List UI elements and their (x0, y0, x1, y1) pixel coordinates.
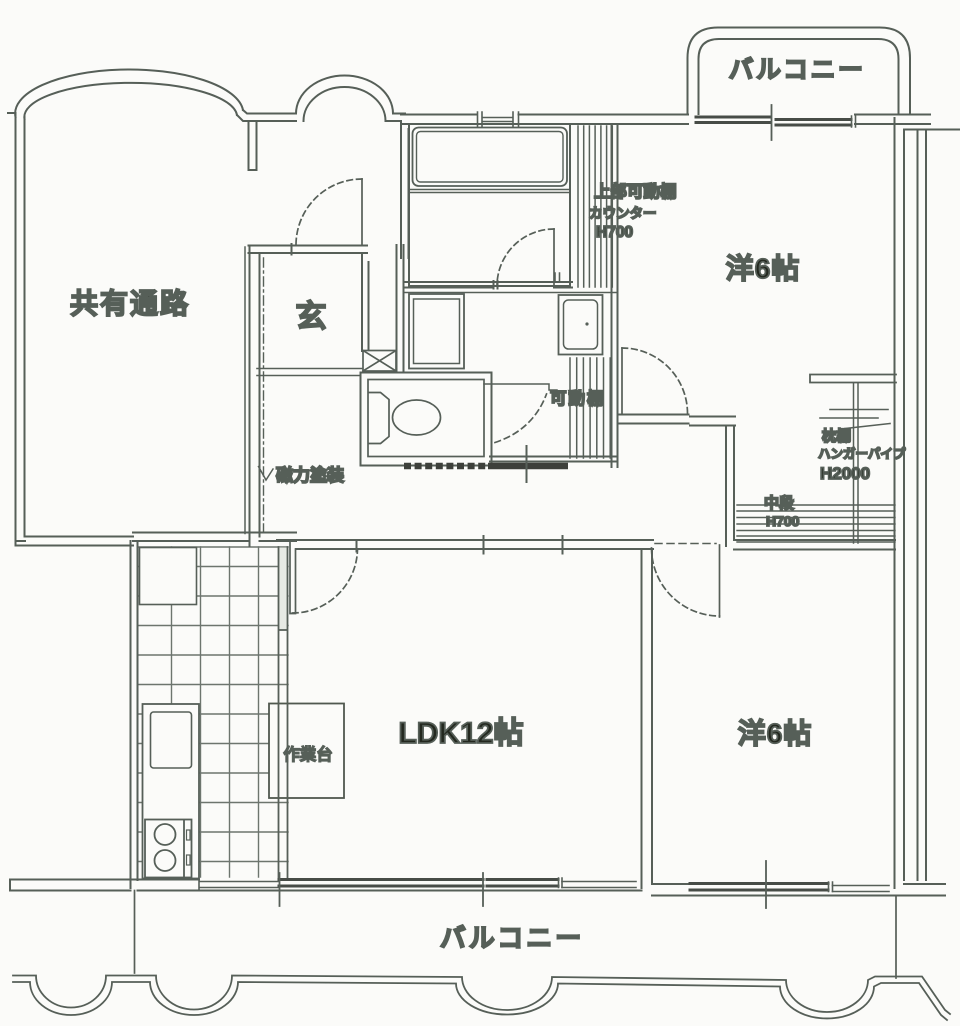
svg-text:作業台: 作業台 (283, 745, 333, 764)
svg-text:H700: H700 (596, 224, 633, 241)
svg-text:LDK12帖: LDK12帖 (398, 717, 523, 750)
svg-text:磁力塗装: 磁力塗装 (276, 465, 344, 485)
svg-text:共有通路: 共有通路 (70, 288, 190, 319)
svg-text:H2000: H2000 (820, 464, 870, 483)
svg-text:中段: 中段 (764, 494, 794, 512)
svg-text:玄: 玄 (296, 299, 327, 334)
svg-text:可動棚: 可動棚 (550, 388, 606, 408)
svg-text:バルコニー: バルコニー (728, 56, 865, 84)
svg-text:H700: H700 (766, 513, 800, 529)
svg-text:枕棚: 枕棚 (822, 427, 851, 445)
svg-text:ハンガーパイプ: ハンガーパイプ (818, 446, 906, 461)
svg-text:洋6帖: 洋6帖 (726, 252, 801, 284)
svg-text:上部可動棚: 上部可動棚 (594, 181, 677, 201)
svg-text:カウンター: カウンター (589, 206, 657, 221)
svg-text:洋6帖: 洋6帖 (738, 717, 813, 749)
svg-text:バルコニー: バルコニー (440, 923, 584, 953)
